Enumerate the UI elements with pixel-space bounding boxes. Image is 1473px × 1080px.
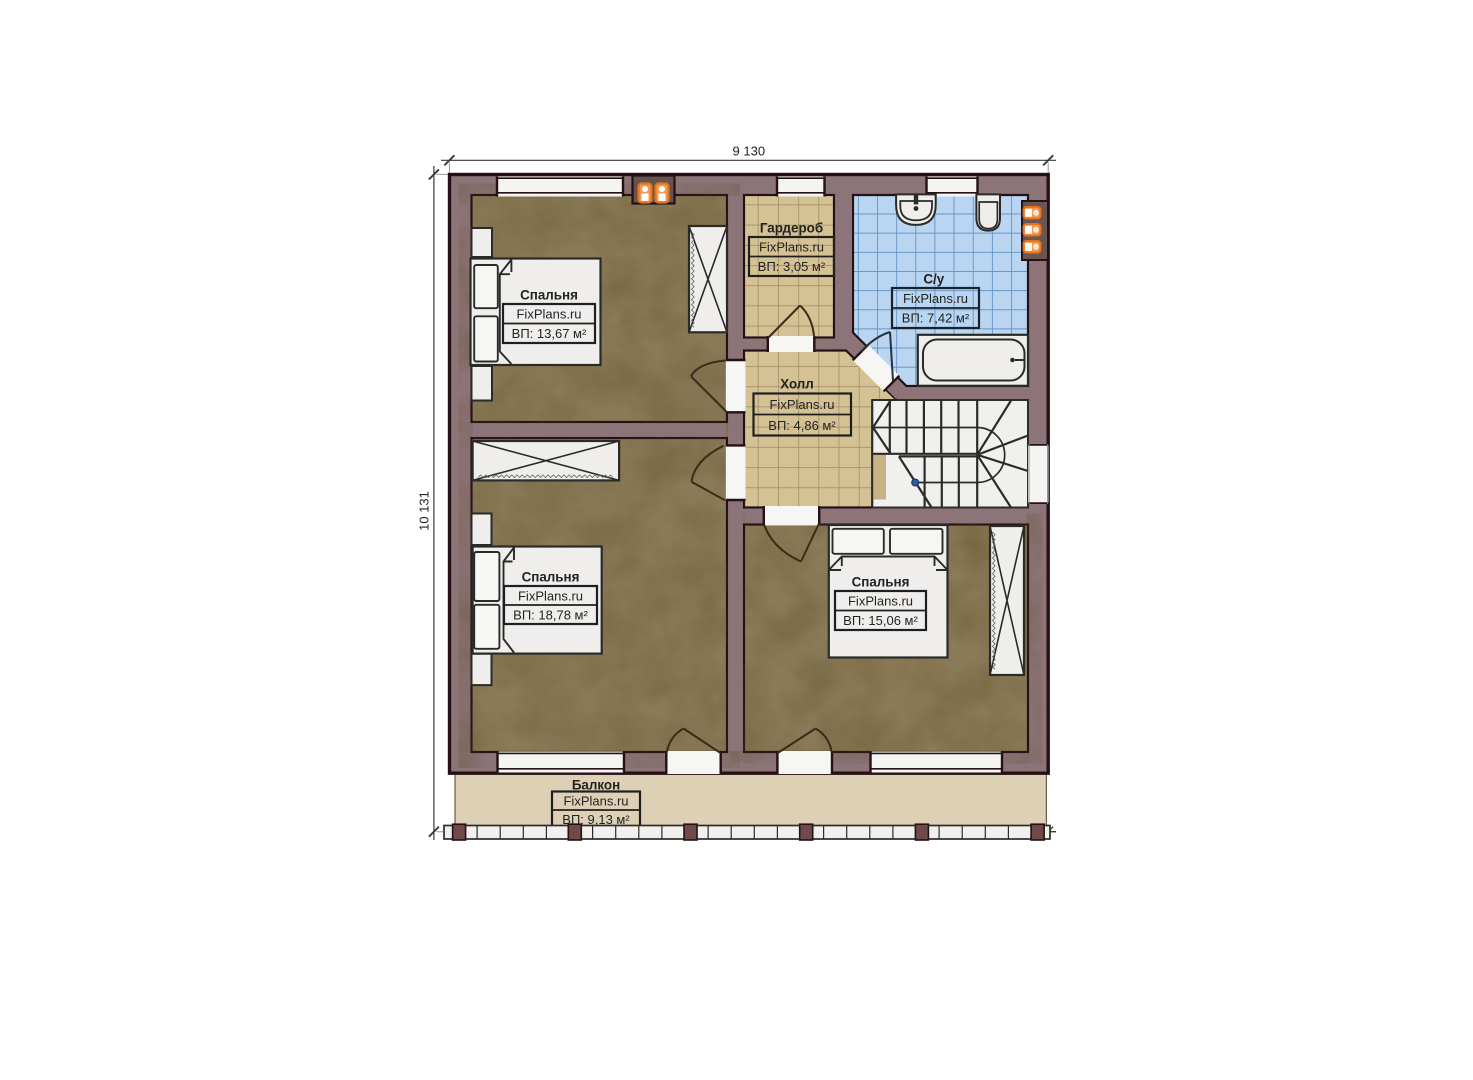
svg-text:Балкон: Балкон	[572, 778, 620, 793]
svg-text:FixPlans.ru: FixPlans.ru	[563, 794, 628, 809]
svg-text:FixPlans.ru: FixPlans.ru	[518, 588, 583, 603]
svg-text:FixPlans.ru: FixPlans.ru	[903, 291, 968, 306]
svg-text:FixPlans.ru: FixPlans.ru	[769, 397, 834, 412]
svg-text:Гардероб: Гардероб	[760, 221, 823, 236]
svg-text:FixPlans.ru: FixPlans.ru	[759, 240, 824, 255]
svg-text:Спальня: Спальня	[852, 575, 910, 590]
svg-text:ВП: 7,42 м²: ВП: 7,42 м²	[902, 311, 970, 326]
svg-text:С/у: С/у	[923, 272, 944, 287]
svg-text:9 130: 9 130	[733, 144, 766, 159]
svg-text:Спальня: Спальня	[520, 288, 578, 303]
svg-text:ВП: 18,78 м²: ВП: 18,78 м²	[513, 607, 588, 622]
svg-text:FixPlans.ru: FixPlans.ru	[516, 307, 581, 322]
svg-text:Холл: Холл	[780, 377, 814, 392]
svg-text:10 131: 10 131	[417, 491, 432, 531]
svg-text:ВП: 15,06 м²: ВП: 15,06 м²	[843, 613, 918, 628]
svg-text:ВП: 13,67 м²: ВП: 13,67 м²	[512, 326, 587, 341]
svg-text:ВП: 4,86 м²: ВП: 4,86 м²	[768, 418, 836, 433]
svg-text:Спальня: Спальня	[522, 570, 580, 585]
svg-text:FixPlans.ru: FixPlans.ru	[848, 594, 913, 609]
svg-text:ВП: 3,05 м²: ВП: 3,05 м²	[758, 259, 826, 274]
